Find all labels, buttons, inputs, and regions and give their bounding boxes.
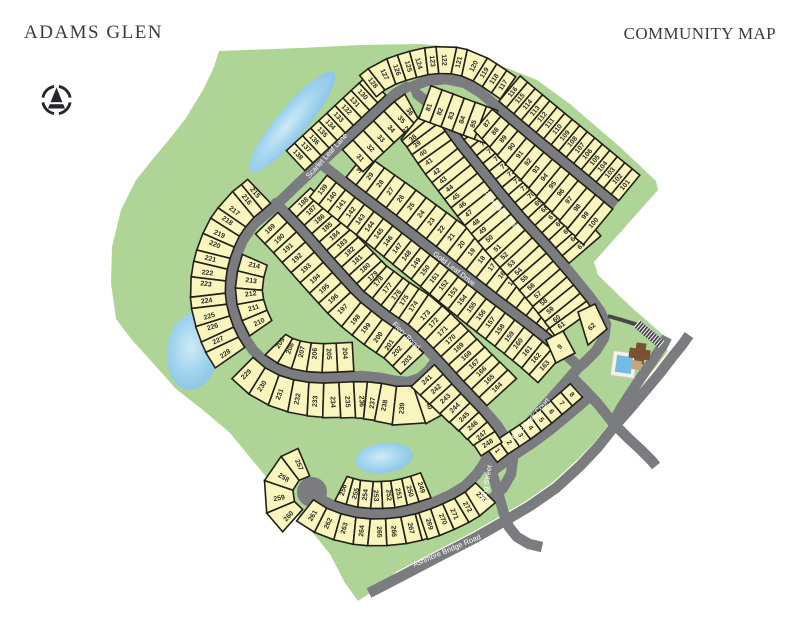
svg-text:206: 206	[312, 348, 320, 360]
svg-text:239: 239	[399, 402, 407, 414]
svg-text:223: 223	[200, 280, 212, 288]
svg-text:224: 224	[201, 297, 213, 305]
svg-text:252: 252	[384, 489, 392, 501]
svg-text:265: 265	[375, 526, 383, 538]
svg-text:ADAMS GLEN: ADAMS GLEN	[24, 22, 163, 43]
svg-text:237: 237	[369, 397, 377, 409]
svg-text:266: 266	[389, 525, 397, 537]
svg-text:122: 122	[440, 54, 448, 66]
svg-text:235: 235	[343, 396, 351, 408]
svg-text:123: 123	[428, 55, 436, 67]
svg-text:205: 205	[324, 348, 332, 360]
svg-text:COMMUNITY MAP: COMMUNITY MAP	[624, 24, 776, 43]
svg-text:234: 234	[328, 396, 336, 408]
svg-text:253: 253	[372, 490, 380, 502]
svg-text:222: 222	[201, 269, 213, 277]
svg-text:264: 264	[358, 525, 366, 537]
svg-text:236: 236	[357, 395, 364, 407]
svg-text:254: 254	[362, 489, 370, 501]
svg-text:212: 212	[245, 290, 257, 298]
svg-text:213: 213	[245, 277, 257, 285]
svg-text:204: 204	[341, 347, 349, 359]
svg-text:233: 233	[312, 395, 320, 407]
